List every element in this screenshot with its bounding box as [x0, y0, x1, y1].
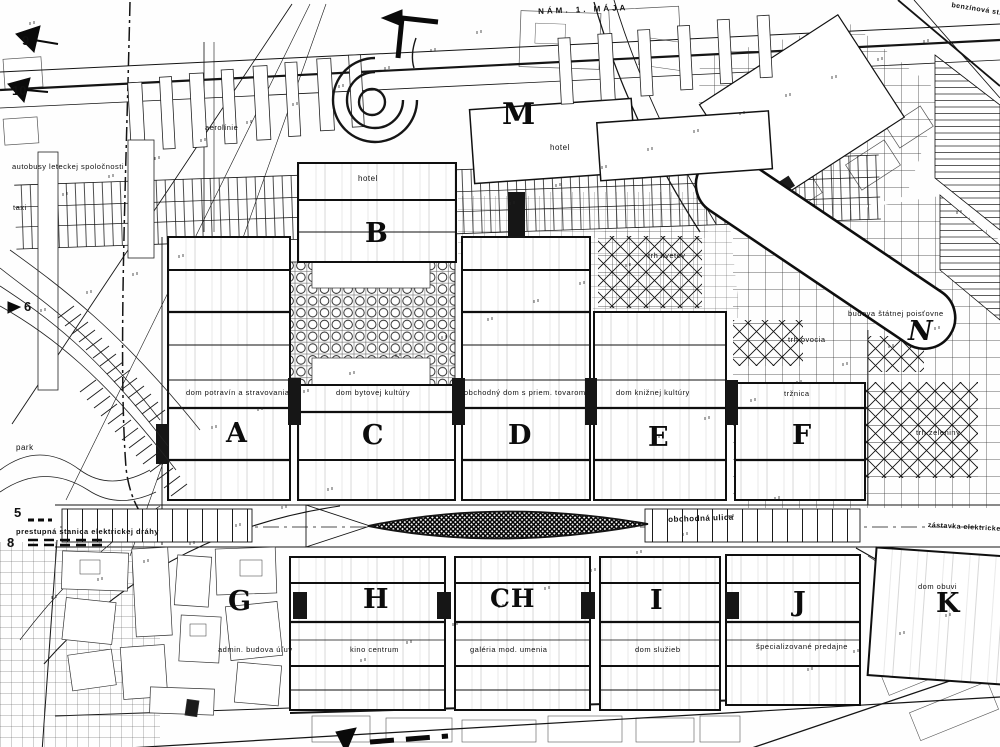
bldg-galeria-mod-umenia: galéria mod. umenia — [470, 646, 547, 654]
city-plan-map: NÁM. 1. MÁJAobchodná ulicabenzínová st.z… — [0, 0, 1000, 747]
block-g: G — [228, 588, 252, 615]
bldg-obchodny-dom: obchodný dom s priem. tovarom — [464, 389, 586, 397]
area-park: park — [16, 444, 34, 452]
marker-9: 9 — [22, 34, 29, 47]
street-benzinova-stanica: benzínová st. — [951, 2, 1000, 17]
area-trh-zeleniny: trh zeleniny — [916, 429, 960, 437]
area-trh-kvetov: trh kvetov — [648, 252, 686, 260]
marker-8: 8 — [7, 536, 14, 549]
bldg-dom-kniznej-kultury: dom knižnej kultúry — [616, 389, 690, 397]
street-nam-1-maja: NÁM. 1. MÁJA — [538, 4, 628, 16]
bldg-admin-budova: admin. budova úľuv — [218, 646, 293, 654]
block-m: M — [502, 100, 536, 130]
marker-5: 5 — [14, 506, 21, 519]
block-d: D — [508, 422, 532, 449]
bldg-hotel-m: hotel — [550, 144, 570, 152]
area-autobusy-leteckej-spolocnosti: autobusy leteckej spoločnosti — [12, 163, 124, 171]
bldg-kino-centrum: kino centrum — [350, 646, 399, 654]
bldg-dom-sluzieb: dom služieb — [635, 646, 681, 654]
marker-10: 10 — [12, 84, 26, 97]
block-j: J — [793, 589, 807, 616]
bldg-hotel-b: hotel — [358, 175, 378, 183]
block-ch: CH — [490, 586, 536, 611]
bldg-dom-potravin: dom potravín a stravovania — [186, 389, 289, 397]
block-a: A — [226, 420, 248, 447]
map-labels: NÁM. 1. MÁJAobchodná ulicabenzínová st.z… — [0, 0, 1000, 747]
street-zastavka-elektrickej-drahy: zástavka elektrickej dráhy — [928, 522, 1000, 534]
bldg-specializovane-predajne: špecializované predajne — [756, 643, 848, 651]
bldg-dom-bytovej-kultury: dom bytovej kultúry — [336, 389, 410, 397]
block-h: H — [363, 586, 390, 613]
block-k: K — [936, 590, 960, 617]
marker-6: 6 — [24, 300, 31, 313]
street-prestupna-stanica: prestupná stanica elektrickej dráhy — [16, 528, 159, 536]
bldg-trznica: tržnica — [784, 390, 810, 398]
block-e: E — [648, 424, 670, 451]
block-b: B — [365, 220, 389, 247]
area-taxi: taxi — [13, 204, 27, 212]
block-i: I — [650, 587, 664, 614]
block-f: F — [792, 422, 812, 449]
area-aerolinie: aerolínie — [205, 124, 238, 132]
street-obchodna-ulica: obchodná ulica — [668, 514, 734, 524]
block-n: N — [908, 318, 934, 345]
area-trh-ovocia: trh ovocia — [788, 336, 826, 344]
block-c: C — [362, 422, 385, 449]
